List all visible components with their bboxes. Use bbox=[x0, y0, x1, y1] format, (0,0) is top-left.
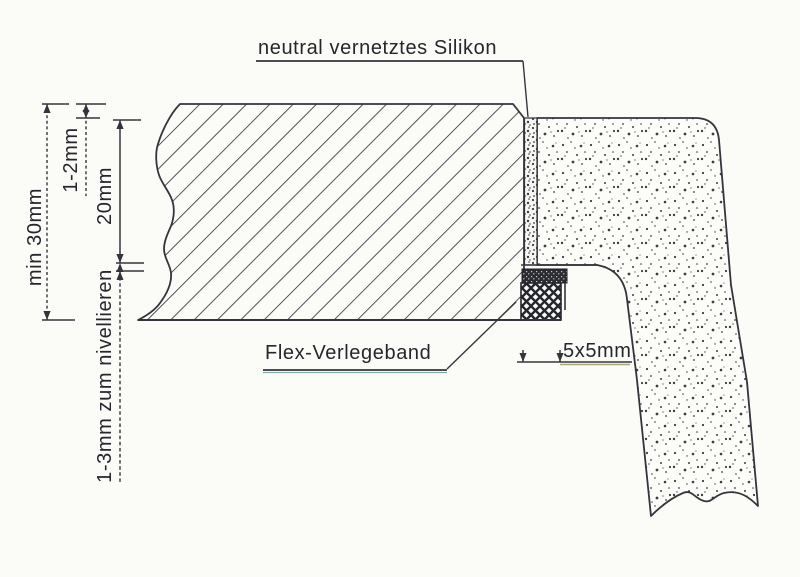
silicone-joint bbox=[525, 118, 538, 265]
installation-cross-section-drawing: neutral vernetztes Silikon Flex-Verlegeb… bbox=[0, 0, 800, 577]
label-flex-tape: Flex-Verlegeband bbox=[265, 342, 431, 364]
dim-text-rebate-depth: 20mm bbox=[94, 167, 116, 225]
label-silicone: neutral vernetztes Silikon bbox=[258, 37, 497, 59]
dim-text-countertop-thickness: min 30mm bbox=[24, 188, 46, 286]
dim-text-surface-offset: 1-2mm bbox=[60, 127, 82, 192]
dim-text-leveling-gap: 1-3mm zum nivellieren bbox=[94, 269, 116, 483]
countertop-section bbox=[138, 104, 524, 320]
drawing-svg: neutral vernetztes Silikon Flex-Verlegeb… bbox=[0, 0, 800, 577]
adhesive-strip bbox=[522, 269, 567, 283]
dim-text-tape-size: 5x5mm bbox=[563, 340, 632, 362]
flex-tape-block bbox=[521, 283, 561, 320]
